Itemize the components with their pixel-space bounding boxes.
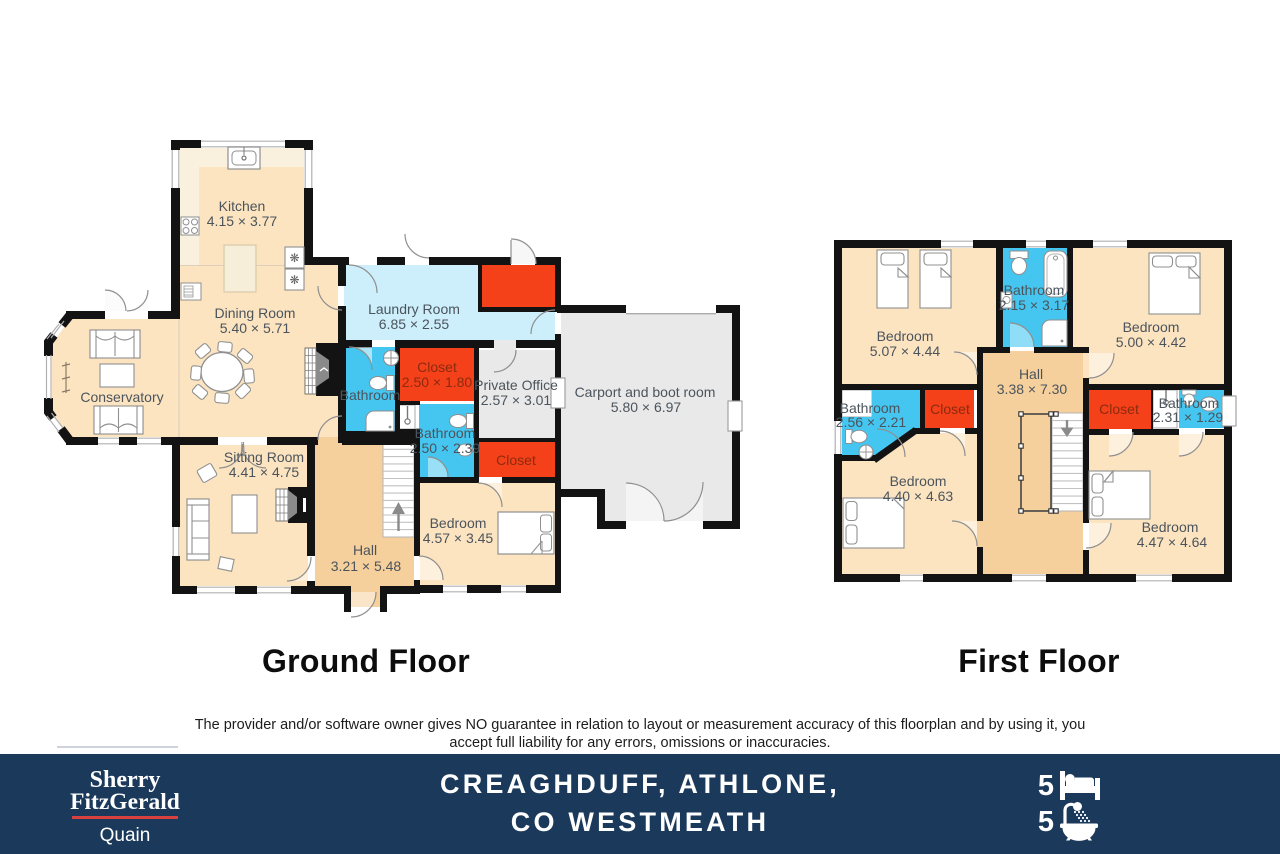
svg-text:3.21 × 5.48: 3.21 × 5.48 — [331, 558, 402, 574]
svg-text:5.80 × 6.97: 5.80 × 6.97 — [611, 399, 682, 415]
svg-text:2.50 × 2.39: 2.50 × 2.39 — [410, 440, 481, 456]
svg-text:Closet: Closet — [930, 401, 970, 417]
svg-text:Bedroom: Bedroom — [1142, 519, 1199, 535]
svg-text:Dining Room: Dining Room — [215, 305, 296, 321]
svg-text:2.31 × 1.29: 2.31 × 1.29 — [1153, 409, 1224, 425]
svg-text:❋: ❋ — [289, 273, 299, 287]
svg-text:❋: ❋ — [289, 251, 299, 265]
svg-text:6.85 × 2.55: 6.85 × 2.55 — [379, 316, 450, 332]
svg-text:Sitting Room: Sitting Room — [224, 449, 304, 465]
svg-text:Carport and boot room: Carport and boot room — [575, 384, 716, 400]
svg-text:Closet: Closet — [496, 452, 536, 468]
svg-text:4.15 × 3.77: 4.15 × 3.77 — [207, 213, 278, 229]
svg-text:Hall: Hall — [353, 542, 377, 558]
svg-text:Bathroom: Bathroom — [340, 387, 401, 403]
svg-text:Laundry Room: Laundry Room — [368, 301, 460, 317]
svg-text:2.57 × 3.01: 2.57 × 3.01 — [481, 392, 552, 408]
svg-text:Closet: Closet — [417, 359, 457, 375]
svg-text:Bedroom: Bedroom — [877, 328, 934, 344]
svg-text:2.15 × 3.17: 2.15 × 3.17 — [999, 297, 1070, 313]
svg-text:5.00 × 4.42: 5.00 × 4.42 — [1116, 334, 1187, 350]
svg-text:3.38 × 7.30: 3.38 × 7.30 — [997, 381, 1068, 397]
svg-text:5.40 × 5.71: 5.40 × 5.71 — [220, 320, 291, 336]
svg-text:5.07 × 4.44: 5.07 × 4.44 — [870, 343, 941, 359]
svg-text:Kitchen: Kitchen — [219, 198, 266, 214]
svg-text:Bathroom: Bathroom — [415, 425, 476, 441]
svg-text:2.50 × 1.80: 2.50 × 1.80 — [402, 374, 473, 390]
svg-text:Private Office: Private Office — [474, 377, 558, 393]
svg-text:4.57 × 3.45: 4.57 × 3.45 — [423, 530, 494, 546]
svg-text:Hall: Hall — [1019, 366, 1043, 382]
svg-text:4.41 × 4.75: 4.41 × 4.75 — [229, 464, 300, 480]
svg-text:4.40 × 4.63: 4.40 × 4.63 — [883, 488, 954, 504]
svg-text:2.56 × 2.21: 2.56 × 2.21 — [836, 414, 907, 430]
svg-text:Bedroom: Bedroom — [1123, 319, 1180, 335]
svg-text:Bedroom: Bedroom — [890, 473, 947, 489]
svg-text:Bedroom: Bedroom — [430, 515, 487, 531]
svg-text:Closet: Closet — [1099, 401, 1139, 417]
svg-text:Bathroom: Bathroom — [1004, 282, 1065, 298]
svg-text:4.47 × 4.64: 4.47 × 4.64 — [1137, 534, 1208, 550]
svg-text:Conservatory: Conservatory — [80, 389, 163, 405]
